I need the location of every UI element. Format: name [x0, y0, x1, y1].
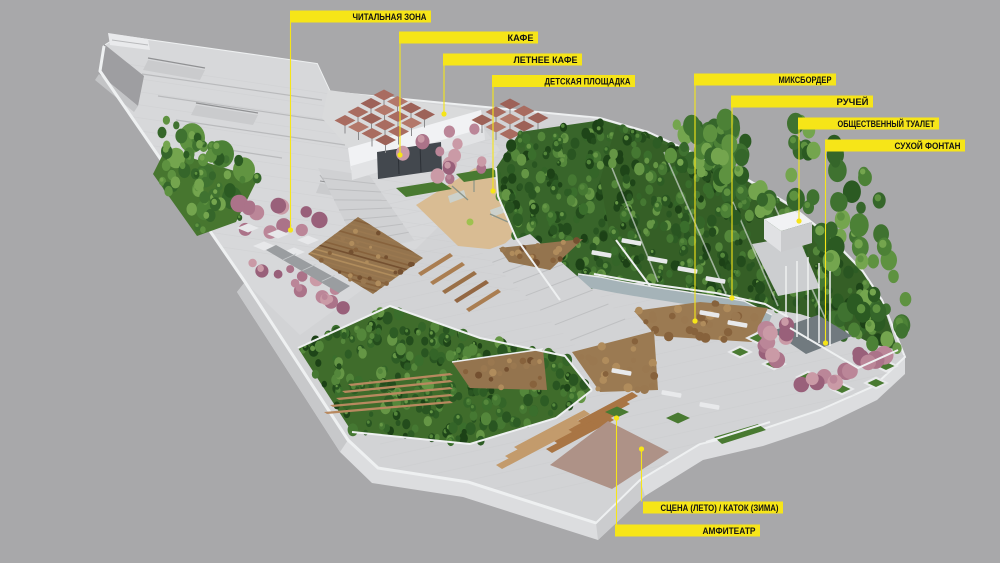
svg-text:ОБЩЕСТВЕННЫЙ ТУАЛЕТ: ОБЩЕСТВЕННЫЙ ТУАЛЕТ — [838, 118, 935, 129]
svg-text:МИКСБОРДЕР: МИКСБОРДЕР — [779, 75, 832, 85]
svg-text:ЧИТАЛЬНАЯ ЗОНА: ЧИТАЛЬНАЯ ЗОНА — [353, 12, 427, 22]
svg-text:РУЧЕЙ: РУЧЕЙ — [837, 96, 869, 107]
svg-text:КАФЕ: КАФЕ — [508, 33, 534, 43]
svg-text:АМФИТЕАТР: АМФИТЕАТР — [703, 526, 756, 536]
svg-text:СЦЕНА (ЛЕТО) / КАТОК (ЗИМА): СЦЕНА (ЛЕТО) / КАТОК (ЗИМА) — [661, 503, 779, 513]
svg-text:СУХОЙ ФОНТАН: СУХОЙ ФОНТАН — [895, 140, 961, 151]
svg-text:ЛЕТНЕЕ КАФЕ: ЛЕТНЕЕ КАФЕ — [514, 55, 578, 65]
svg-text:ДЕТСКАЯ ПЛОЩАДКА: ДЕТСКАЯ ПЛОЩАДКА — [545, 76, 631, 86]
